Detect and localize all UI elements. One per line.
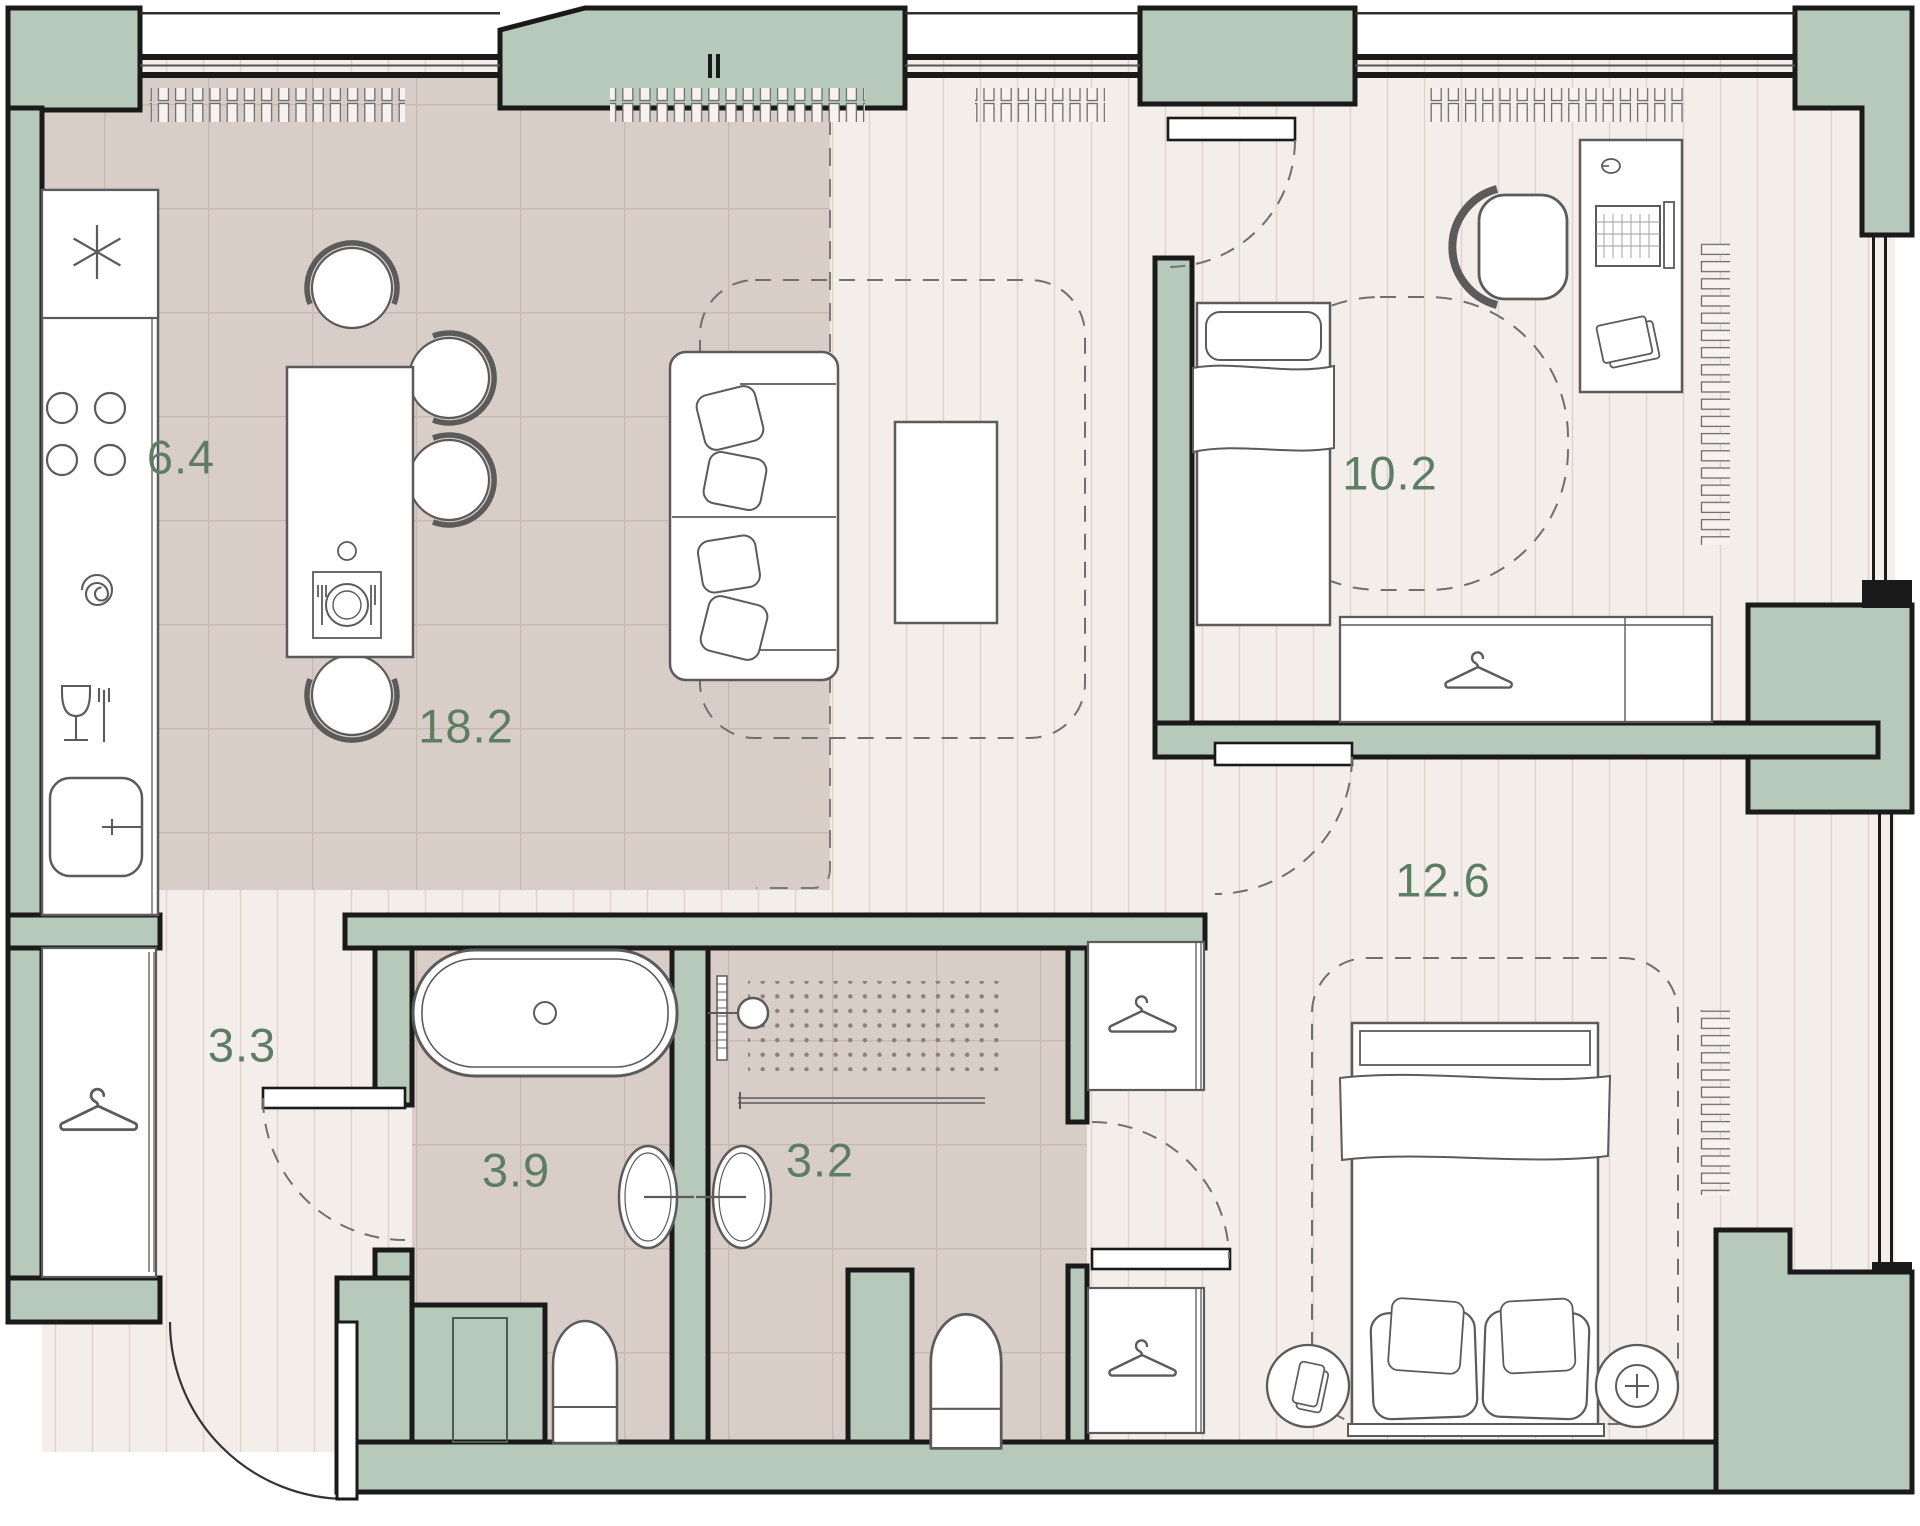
- room-label-living: 18.2: [418, 699, 513, 754]
- window-glass: [140, 65, 500, 67]
- pier: [1748, 605, 1912, 812]
- window: [905, 72, 1140, 78]
- wall-shower-east: [1068, 948, 1087, 1122]
- blanket: [1340, 1075, 1610, 1160]
- room-label-bathroom: 3.9: [482, 1143, 550, 1198]
- nightstand-phone: [1267, 1345, 1349, 1427]
- wall-bath-top: [345, 915, 1205, 948]
- wall-toilet-niche: [848, 1270, 912, 1452]
- window: [1884, 235, 1887, 585]
- mouse-icon: [1602, 159, 1620, 173]
- room-label-hallway: 3.3: [208, 1018, 276, 1073]
- window: [905, 54, 1140, 60]
- wardrobe: [1340, 617, 1712, 722]
- radiator: [610, 88, 865, 122]
- floor-plan: 6.4 18.2 10.2 12.6 3.3 3.9 3.2: [0, 0, 1920, 1526]
- radiator: [1700, 1010, 1730, 1195]
- kitchen-sink-icon: [50, 778, 142, 876]
- wall-toilet-niche: [412, 1305, 545, 1452]
- radiator: [1428, 88, 1685, 122]
- window-glass: [905, 65, 1140, 67]
- radiator: [975, 88, 1105, 122]
- shower-spray-area: [748, 981, 1005, 1071]
- facade-line: [1355, 12, 1795, 15]
- wall-shower-east: [1068, 1266, 1087, 1452]
- wall-segment: [1872, 1262, 1912, 1274]
- dining-table: [287, 367, 413, 657]
- window-mullion: [708, 54, 712, 78]
- facade-line: [140, 12, 500, 15]
- wall-left: [8, 108, 42, 1280]
- room-label-kitchen: 6.4: [147, 430, 215, 485]
- window: [1355, 72, 1795, 78]
- window-glass: [1355, 65, 1795, 67]
- wardrobe: [1088, 1288, 1204, 1433]
- room-label-shower-room: 3.2: [786, 1133, 854, 1188]
- blanket: [1193, 366, 1334, 452]
- window: [140, 54, 500, 60]
- window: [1890, 812, 1893, 1267]
- double-bed: [1340, 1023, 1610, 1436]
- facade-line: [905, 12, 1140, 15]
- desk: [1580, 140, 1682, 392]
- wall-hallway-bottom: [8, 1278, 160, 1322]
- wall-living-bedroom: [1155, 258, 1192, 757]
- kitchen-counter: [42, 190, 158, 915]
- wall-bathroom-west: [375, 948, 412, 1105]
- pier: [1140, 8, 1355, 104]
- closet: [42, 948, 156, 1277]
- window: [1872, 235, 1875, 585]
- toilet: [553, 1321, 617, 1443]
- radiator: [150, 88, 405, 122]
- floor-plan-svg: [0, 0, 1920, 1526]
- coffee-table: [895, 422, 997, 623]
- window: [1355, 54, 1795, 60]
- window: [140, 72, 500, 78]
- window-mullion: [716, 54, 720, 78]
- pier: [8, 8, 140, 110]
- nightstand-lamp: [1596, 1345, 1678, 1427]
- wall-bottom: [337, 1442, 1716, 1492]
- toilet: [931, 1314, 1001, 1448]
- room-label-bedroom-master: 12.6: [1395, 853, 1490, 908]
- wall-closet-top: [8, 915, 160, 948]
- radiator: [1700, 240, 1730, 545]
- wall-segment: [1862, 580, 1912, 608]
- bed-base: [1348, 1424, 1604, 1436]
- room-label-bedroom-small: 10.2: [1342, 446, 1437, 501]
- bathtub: [413, 950, 677, 1076]
- window: [1878, 812, 1881, 1267]
- pillow: [1206, 312, 1321, 360]
- wardrobe: [1088, 942, 1204, 1090]
- single-bed: [1193, 303, 1334, 625]
- sofa: [670, 352, 838, 680]
